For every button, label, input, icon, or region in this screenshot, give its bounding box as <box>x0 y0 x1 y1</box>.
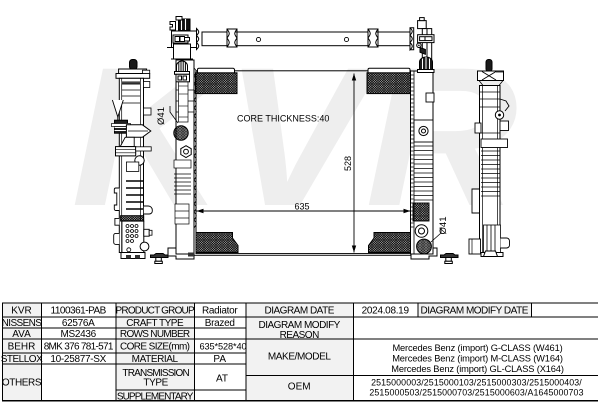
svg-text:AVA: AVA <box>12 329 31 340</box>
svg-text:KVR: KVR <box>11 306 32 317</box>
svg-text:REASON: REASON <box>280 330 320 341</box>
svg-text:62576A: 62576A <box>62 318 95 329</box>
svg-text:NISSENS: NISSENS <box>2 318 43 329</box>
svg-text:2515000503/2515000703/25150006: 2515000503/2515000703/2515000603/A164500… <box>369 387 583 397</box>
svg-text:2024.08.19: 2024.08.19 <box>362 306 410 317</box>
svg-text:528: 528 <box>343 156 353 171</box>
svg-text:Mercedes Benz (import) GL-CLAS: Mercedes Benz (import) GL-CLASS (X164) <box>391 364 564 374</box>
svg-text:AT: AT <box>216 374 228 385</box>
svg-text:ROWS NUMBER: ROWS NUMBER <box>120 329 190 340</box>
svg-text:Mercedes Benz (import) G-CLASS: Mercedes Benz (import) G-CLASS (W461) <box>392 343 562 353</box>
svg-text:635: 635 <box>294 202 309 212</box>
svg-text:Ø41: Ø41 <box>156 107 167 125</box>
svg-text:PA: PA <box>213 354 226 365</box>
svg-text:Radiator: Radiator <box>202 306 238 317</box>
svg-text:Ø41: Ø41 <box>438 217 449 235</box>
svg-text:MS2436: MS2436 <box>60 329 96 340</box>
svg-text:1100361-PAB: 1100361-PAB <box>51 306 107 317</box>
svg-text:STELLOX: STELLOX <box>1 354 43 365</box>
svg-text:BEHR: BEHR <box>8 342 36 353</box>
svg-text:OEM: OEM <box>288 382 311 393</box>
svg-text:CRAFT TYPE: CRAFT TYPE <box>126 318 184 329</box>
svg-text:OTHERS: OTHERS <box>2 378 42 389</box>
svg-text:PRODUCT GROUP: PRODUCT GROUP <box>116 306 195 317</box>
svg-text:SUPPLEMENTARY: SUPPLEMENTARY <box>117 391 194 402</box>
svg-text:DIAGRAM MODIFY DATE: DIAGRAM MODIFY DATE <box>421 306 529 317</box>
svg-text:10-25877-SX: 10-25877-SX <box>50 354 106 365</box>
svg-text:2515000003/2515000103/25150003: 2515000003/2515000103/2515000303/2515000… <box>371 377 582 387</box>
svg-text:CORE THICKNESS:40: CORE THICKNESS:40 <box>237 113 329 123</box>
svg-text:Brazed: Brazed <box>205 318 235 329</box>
svg-text:CORE SIZE(mm): CORE SIZE(mm) <box>120 342 190 353</box>
svg-text:MAKE/MODEL: MAKE/MODEL <box>268 352 332 363</box>
svg-text:TYPE: TYPE <box>143 378 168 389</box>
svg-text:DIAGRAM DATE: DIAGRAM DATE <box>265 306 335 317</box>
svg-text:MATERIAL: MATERIAL <box>132 354 179 365</box>
svg-text:635*528*40: 635*528*40 <box>199 341 246 351</box>
svg-text:8MK 376 781-571: 8MK 376 781-571 <box>44 342 114 353</box>
svg-text:Mercedes Benz (import) M-CLASS: Mercedes Benz (import) M-CLASS (W164) <box>392 354 563 364</box>
